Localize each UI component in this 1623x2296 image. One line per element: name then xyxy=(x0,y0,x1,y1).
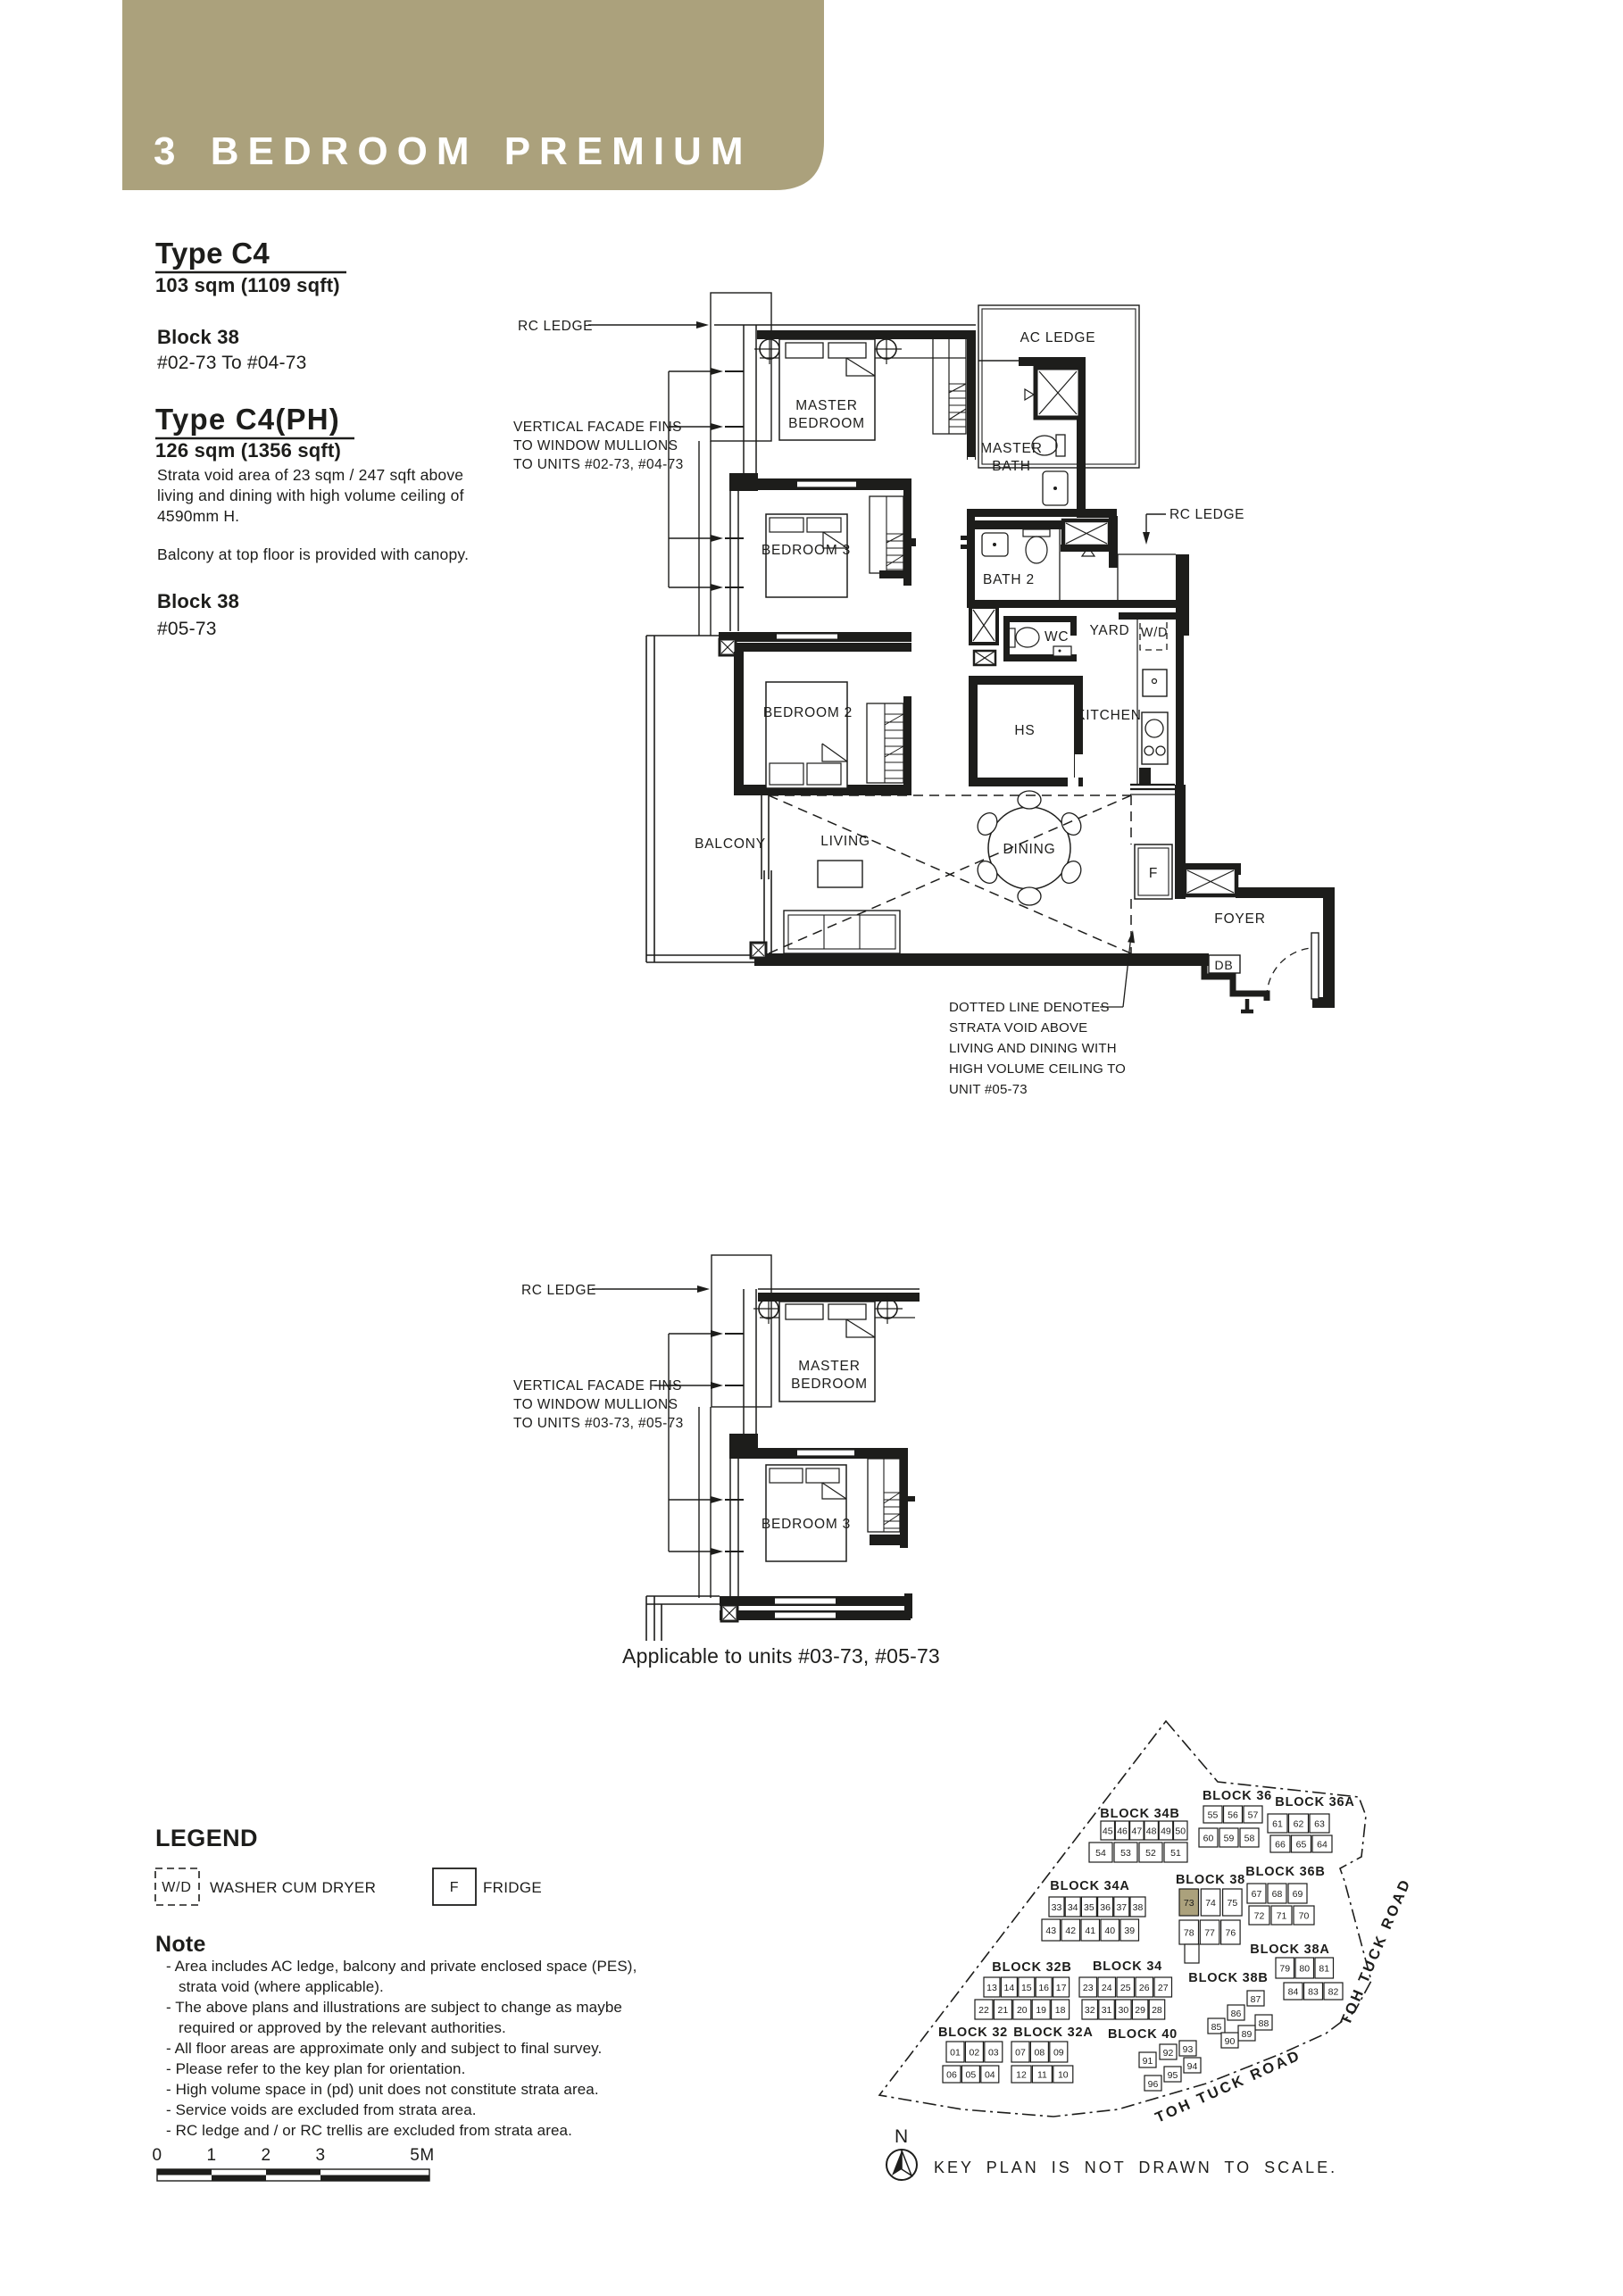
svg-text:3 BEDROOM PREMIUM: 3 BEDROOM PREMIUM xyxy=(154,129,752,173)
svg-text:- RC ledge and / or RC trellis: - RC ledge and / or RC trellis are exclu… xyxy=(166,2122,572,2139)
svg-text:05: 05 xyxy=(966,2069,977,2080)
svg-text:10: 10 xyxy=(1058,2069,1069,2080)
svg-text:BLOCK 40: BLOCK 40 xyxy=(1108,2027,1178,2042)
svg-text:88: 88 xyxy=(1259,2018,1269,2029)
svg-text:87: 87 xyxy=(1251,1994,1261,2005)
svg-text:BEDROOM 3: BEDROOM 3 xyxy=(762,543,851,558)
svg-text:73: 73 xyxy=(1184,1898,1194,1909)
svg-text:02: 02 xyxy=(970,2047,980,2058)
svg-text:BLOCK 38A: BLOCK 38A xyxy=(1250,1942,1329,1957)
svg-text:BLOCK 34B: BLOCK 34B xyxy=(1100,1807,1179,1821)
svg-text:- Service voids are excluded f: - Service voids are excluded from strata… xyxy=(166,2101,477,2118)
svg-text:43: 43 xyxy=(1045,1926,1056,1936)
svg-text:61: 61 xyxy=(1272,1818,1283,1829)
svg-text:UNIT #05-73: UNIT #05-73 xyxy=(949,1082,1028,1097)
svg-text:85: 85 xyxy=(1211,2022,1222,2033)
svg-text:09: 09 xyxy=(1053,2047,1064,2058)
svg-text:TO WINDOW MULLIONS: TO WINDOW MULLIONS xyxy=(513,1397,678,1412)
svg-text:15: 15 xyxy=(1021,1983,1032,1993)
svg-text:69: 69 xyxy=(1293,1889,1303,1900)
svg-text:RC LEDGE: RC LEDGE xyxy=(1169,507,1244,522)
svg-text:76: 76 xyxy=(1226,1927,1236,1938)
svg-text:33: 33 xyxy=(1052,1902,1062,1913)
svg-text:Type C4: Type C4 xyxy=(155,237,270,270)
svg-text:37: 37 xyxy=(1116,1902,1127,1913)
svg-text:YARD: YARD xyxy=(1089,623,1129,638)
svg-text:BLOCK 34A: BLOCK 34A xyxy=(1050,1879,1129,1893)
svg-text:126 sqm (1356 sqft): 126 sqm (1356 sqft) xyxy=(155,439,341,462)
svg-text:96: 96 xyxy=(1148,2079,1159,2090)
svg-text:F: F xyxy=(1149,866,1158,881)
svg-text:70: 70 xyxy=(1299,1910,1310,1921)
svg-text:90: 90 xyxy=(1225,2036,1236,2047)
svg-text:92: 92 xyxy=(1163,2048,1174,2059)
svg-text:54: 54 xyxy=(1095,1848,1106,1859)
svg-text:14: 14 xyxy=(1004,1983,1015,1993)
svg-text:WASHER CUM DRYER: WASHER CUM DRYER xyxy=(210,1879,376,1896)
svg-text:FRIDGE: FRIDGE xyxy=(483,1879,542,1896)
svg-text:BLOCK 36A: BLOCK 36A xyxy=(1275,1795,1354,1809)
svg-text:W/D: W/D xyxy=(1141,626,1169,640)
svg-text:strata void (where applicable): strata void (where applicable). xyxy=(179,1978,384,1995)
svg-text:BLOCK 38: BLOCK 38 xyxy=(1176,1873,1245,1887)
svg-text:53: 53 xyxy=(1120,1848,1131,1859)
svg-text:12: 12 xyxy=(1016,2069,1027,2080)
svg-text:HS: HS xyxy=(1014,723,1035,738)
svg-text:1: 1 xyxy=(206,2146,216,2165)
svg-text:75: 75 xyxy=(1228,1898,1238,1909)
svg-text:41: 41 xyxy=(1085,1926,1095,1936)
svg-text:45: 45 xyxy=(1103,1826,1113,1836)
svg-text:11: 11 xyxy=(1037,2069,1047,2080)
svg-text:DB: DB xyxy=(1214,958,1233,972)
svg-text:WC: WC xyxy=(1045,629,1069,645)
svg-text:BALCONY: BALCONY xyxy=(695,836,766,852)
svg-text:4590mm H.: 4590mm H. xyxy=(157,507,239,525)
svg-text:91: 91 xyxy=(1143,2056,1153,2067)
svg-text:81: 81 xyxy=(1319,1963,1329,1974)
svg-text:93: 93 xyxy=(1183,2044,1194,2055)
svg-text:80: 80 xyxy=(1299,1963,1310,1974)
svg-text:48: 48 xyxy=(1146,1826,1157,1836)
svg-text:RC LEDGE: RC LEDGE xyxy=(521,1283,596,1298)
svg-text:29: 29 xyxy=(1135,2005,1145,2016)
svg-text:- Please refer to the key plan: - Please refer to the key plan for orien… xyxy=(166,2060,465,2077)
svg-text:23: 23 xyxy=(1083,1983,1094,1993)
svg-text:BATH: BATH xyxy=(992,459,1030,474)
svg-text:26: 26 xyxy=(1139,1983,1150,1993)
svg-text:KEY PLAN IS NOT DRAWN TO SCALE: KEY PLAN IS NOT DRAWN TO SCALE. xyxy=(934,2159,1337,2176)
svg-text:84: 84 xyxy=(1288,1986,1299,1997)
svg-text:F: F xyxy=(450,1880,460,1895)
svg-text:25: 25 xyxy=(1120,1983,1131,1993)
svg-text:BLOCK 38B: BLOCK 38B xyxy=(1188,1971,1268,1985)
svg-text:78: 78 xyxy=(1184,1927,1194,1938)
svg-text:Type C4(PH): Type C4(PH) xyxy=(155,403,340,436)
svg-text:Balcony at top floor is provid: Balcony at top floor is provided with ca… xyxy=(157,545,469,563)
svg-text:40: 40 xyxy=(1104,1926,1115,1936)
svg-text:62: 62 xyxy=(1294,1818,1304,1829)
svg-text:MASTER: MASTER xyxy=(795,398,857,413)
svg-text:42: 42 xyxy=(1065,1926,1076,1936)
svg-text:03: 03 xyxy=(988,2047,999,2058)
svg-text:W/D: W/D xyxy=(162,1880,192,1895)
svg-text:66: 66 xyxy=(1275,1839,1286,1850)
svg-text:72: 72 xyxy=(1254,1910,1265,1921)
svg-text:82: 82 xyxy=(1328,1986,1339,1997)
svg-text:#05-73: #05-73 xyxy=(157,619,217,639)
svg-text:13: 13 xyxy=(986,1983,997,1993)
svg-text:52: 52 xyxy=(1145,1848,1156,1859)
svg-text:- The above plans and illustra: - The above plans and illustrations are … xyxy=(166,1999,622,2016)
svg-text:16: 16 xyxy=(1038,1983,1049,1993)
svg-text:BEDROOM 3: BEDROOM 3 xyxy=(762,1517,851,1532)
svg-text:36: 36 xyxy=(1100,1902,1111,1913)
svg-text:64: 64 xyxy=(1317,1839,1328,1850)
svg-text:65: 65 xyxy=(1296,1839,1307,1850)
svg-text:BEDROOM: BEDROOM xyxy=(791,1377,868,1392)
svg-text:3: 3 xyxy=(315,2146,325,2165)
svg-text:required or approved by the re: required or approved by the relevant aut… xyxy=(179,2019,506,2036)
svg-text:DINING: DINING xyxy=(1003,842,1055,857)
svg-text:BEDROOM: BEDROOM xyxy=(788,416,865,431)
svg-text:50: 50 xyxy=(1175,1826,1186,1836)
svg-text:LIVING AND DINING WITH: LIVING AND DINING WITH xyxy=(949,1041,1117,1056)
svg-text:living and dining with high vo: living and dining with high volume ceili… xyxy=(157,487,464,504)
svg-text:63: 63 xyxy=(1314,1818,1325,1829)
svg-text:46: 46 xyxy=(1117,1826,1128,1836)
svg-text:67: 67 xyxy=(1252,1889,1262,1900)
svg-text:MASTER: MASTER xyxy=(798,1359,860,1374)
svg-text:20: 20 xyxy=(1017,2005,1028,2016)
svg-text:60: 60 xyxy=(1203,1833,1214,1843)
svg-text:34: 34 xyxy=(1068,1902,1078,1913)
svg-text:BATH 2: BATH 2 xyxy=(983,572,1035,587)
svg-text:94: 94 xyxy=(1187,2061,1198,2072)
svg-text:68: 68 xyxy=(1272,1889,1283,1900)
svg-text:KITCHEN: KITCHEN xyxy=(1076,708,1142,723)
svg-text:5M: 5M xyxy=(410,2146,434,2165)
svg-text:30: 30 xyxy=(1119,2005,1129,2016)
svg-text:TO UNITS #02-73, #04-73: TO UNITS #02-73, #04-73 xyxy=(513,457,684,472)
svg-text:- All floor areas are approxim: - All floor areas are approximate only a… xyxy=(166,2040,602,2057)
svg-text:74: 74 xyxy=(1205,1898,1216,1909)
svg-text:77: 77 xyxy=(1204,1927,1215,1938)
svg-text:55: 55 xyxy=(1208,1809,1219,1820)
svg-text:LEGEND: LEGEND xyxy=(155,1825,258,1851)
svg-text:DOTTED LINE DENOTES: DOTTED LINE DENOTES xyxy=(949,1000,1110,1015)
svg-text:AC LEDGE: AC LEDGE xyxy=(1020,330,1096,345)
svg-text:- Area includes AC ledge, balc: - Area includes AC ledge, balcony and pr… xyxy=(166,1958,637,1975)
svg-text:18: 18 xyxy=(1055,2005,1066,2016)
svg-text:Block 38: Block 38 xyxy=(157,590,239,612)
svg-text:BLOCK 32A: BLOCK 32A xyxy=(1013,2026,1093,2040)
svg-text:MASTER: MASTER xyxy=(980,441,1042,456)
svg-text:TO WINDOW MULLIONS: TO WINDOW MULLIONS xyxy=(513,438,678,453)
svg-text:22: 22 xyxy=(978,2005,989,2016)
svg-text:19: 19 xyxy=(1036,2005,1046,2016)
svg-text:95: 95 xyxy=(1168,2070,1178,2081)
svg-text:04: 04 xyxy=(985,2069,995,2080)
svg-text:Note: Note xyxy=(155,1932,206,1957)
svg-text:TO UNITS #03-73, #05-73: TO UNITS #03-73, #05-73 xyxy=(513,1416,684,1431)
svg-text:BLOCK 36: BLOCK 36 xyxy=(1203,1789,1272,1803)
svg-text:2: 2 xyxy=(261,2146,270,2165)
svg-text:BLOCK 32: BLOCK 32 xyxy=(938,2026,1008,2040)
svg-text:06: 06 xyxy=(946,2069,957,2080)
svg-text:VERTICAL FACADE FINS: VERTICAL FACADE FINS xyxy=(513,420,682,435)
svg-text:71: 71 xyxy=(1277,1910,1287,1921)
svg-text:49: 49 xyxy=(1161,1826,1171,1836)
svg-text:0: 0 xyxy=(152,2146,162,2165)
svg-text:FOYER: FOYER xyxy=(1214,911,1265,927)
svg-text:58: 58 xyxy=(1244,1833,1255,1843)
svg-text:103 sqm (1109 sqft): 103 sqm (1109 sqft) xyxy=(155,274,340,296)
svg-text:28: 28 xyxy=(1152,2005,1162,2016)
svg-text:24: 24 xyxy=(1102,1983,1112,1993)
svg-text:- High volume space in (pd) un: - High volume space in (pd) unit does no… xyxy=(166,2081,599,2098)
svg-text:BLOCK 36B: BLOCK 36B xyxy=(1245,1865,1325,1879)
svg-text:N: N xyxy=(895,2126,909,2147)
svg-text:Strata void area of 23 sqm / 2: Strata void area of 23 sqm / 247 sqft ab… xyxy=(157,466,463,484)
svg-text:Block 38: Block 38 xyxy=(157,326,239,348)
svg-text:57: 57 xyxy=(1248,1809,1259,1820)
svg-text:79: 79 xyxy=(1279,1963,1290,1974)
svg-text:47: 47 xyxy=(1132,1826,1143,1836)
svg-text:86: 86 xyxy=(1231,2009,1242,2019)
svg-text:32: 32 xyxy=(1085,2005,1095,2016)
svg-text:51: 51 xyxy=(1170,1848,1181,1859)
svg-text:STRATA VOID ABOVE: STRATA VOID ABOVE xyxy=(949,1020,1087,1036)
svg-text:07: 07 xyxy=(1015,2047,1026,2058)
svg-text:35: 35 xyxy=(1084,1902,1094,1913)
svg-text:#02-73 To #04-73: #02-73 To #04-73 xyxy=(157,353,306,373)
svg-text:89: 89 xyxy=(1242,2029,1253,2040)
svg-text:01: 01 xyxy=(950,2047,961,2058)
svg-text:08: 08 xyxy=(1035,2047,1045,2058)
svg-text:BLOCK 34: BLOCK 34 xyxy=(1093,1959,1162,1974)
svg-text:27: 27 xyxy=(1158,1983,1169,1993)
svg-text:BLOCK 32B: BLOCK 32B xyxy=(992,1960,1071,1975)
svg-text:59: 59 xyxy=(1224,1833,1235,1843)
svg-text:56: 56 xyxy=(1228,1809,1238,1820)
svg-text:HIGH VOLUME CEILING TO: HIGH VOLUME CEILING TO xyxy=(949,1061,1126,1077)
svg-text:31: 31 xyxy=(1102,2005,1112,2016)
svg-text:38: 38 xyxy=(1133,1902,1144,1913)
svg-text:39: 39 xyxy=(1124,1926,1135,1936)
svg-text:17: 17 xyxy=(1056,1983,1067,1993)
svg-text:21: 21 xyxy=(998,2005,1009,2016)
svg-text:Applicable to units #03-73, #: Applicable to units #03-73, #05-73 xyxy=(622,1644,940,1668)
svg-text:RC LEDGE: RC LEDGE xyxy=(518,319,593,334)
svg-text:83: 83 xyxy=(1308,1986,1319,1997)
svg-text:BEDROOM 2: BEDROOM 2 xyxy=(763,705,853,720)
